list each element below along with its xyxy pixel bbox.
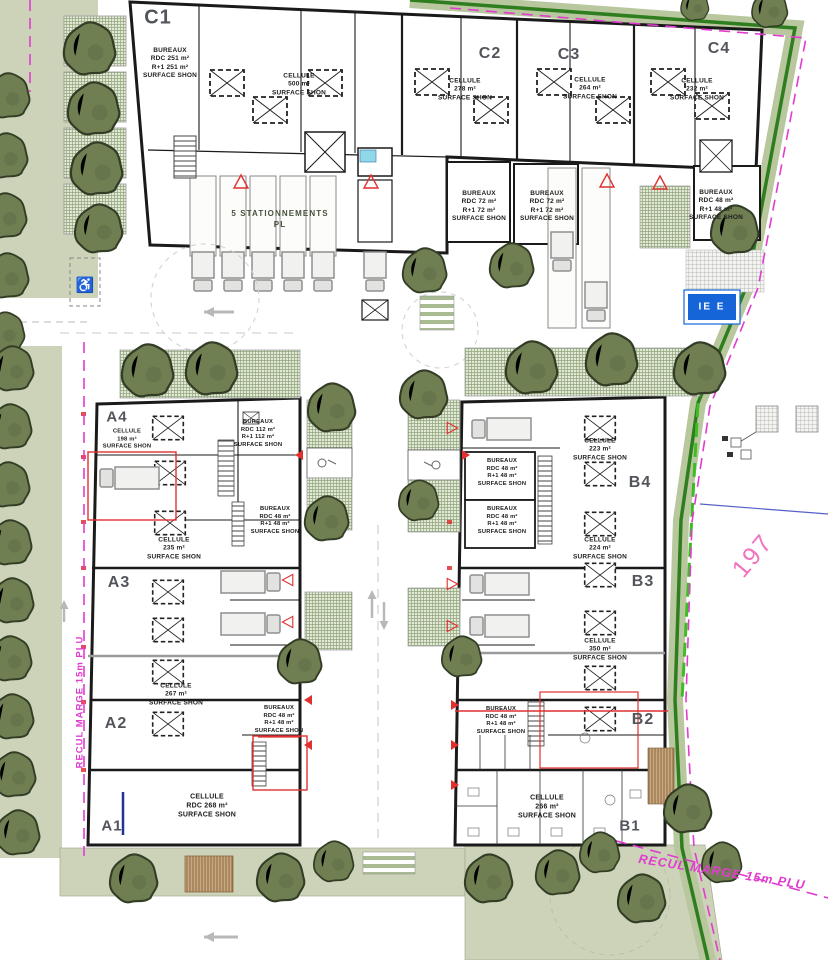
wheelchair-icon: ♿ bbox=[76, 276, 95, 294]
cellule-label-c2: CELLULE278 m²SURFACE SHON bbox=[438, 77, 492, 102]
unit-label-b3: B3 bbox=[632, 573, 654, 591]
roof-hatch-icon bbox=[585, 512, 616, 535]
tree-icon bbox=[0, 810, 40, 854]
bureaux-label-a4: BUREAUXRDC 112 m²R+1 112 m²SURFACE SHON bbox=[234, 419, 282, 449]
tree-icon bbox=[490, 243, 534, 287]
roof-hatch-icon bbox=[585, 416, 616, 439]
truck-icon bbox=[221, 571, 280, 593]
bureaux-label-c3: BUREAUXRDC 72 m²R+1 72 m²SURFACE SHON bbox=[520, 190, 574, 224]
cellule-label-c3: CELLULE264 m²SURFACE SHON bbox=[563, 76, 617, 101]
tree-icon bbox=[681, 0, 709, 20]
bureaux-label-a2: BUREAUXRDC 48 m²R+1 48 m²SURFACE SHON bbox=[255, 705, 303, 735]
bureaux-label-c2: BUREAUXRDC 72 m²R+1 72 m²SURFACE SHON bbox=[452, 190, 506, 224]
tree-icon bbox=[752, 0, 788, 27]
roof-hatch-icon bbox=[253, 97, 287, 123]
truck-icon bbox=[551, 232, 573, 271]
tree-icon bbox=[314, 841, 354, 881]
roof-hatch-icon bbox=[153, 618, 184, 641]
site-plan: ♿ bbox=[0, 0, 828, 960]
unit-label-b2: B2 bbox=[632, 711, 654, 729]
cellule-label-b3: CELLULE224 m²SURFACE SHON bbox=[573, 536, 627, 561]
unit-label-c2: C2 bbox=[479, 45, 501, 63]
detail-callouts bbox=[722, 406, 818, 459]
unit-label-b1: B1 bbox=[619, 818, 640, 835]
site-plan-drawing: ♿ bbox=[0, 0, 828, 960]
tree-icon bbox=[400, 370, 447, 418]
roof-hatch-icon bbox=[153, 660, 184, 683]
tree-icon bbox=[403, 248, 447, 292]
crosswalk bbox=[420, 296, 454, 330]
truck-icon bbox=[364, 252, 386, 291]
roof-hatch-icon bbox=[155, 511, 186, 534]
unit-label-c4: C4 bbox=[708, 40, 730, 58]
truck-icon bbox=[221, 613, 280, 635]
tree-icon bbox=[586, 333, 637, 385]
stair-icon bbox=[218, 440, 234, 496]
unit-label-a2: A2 bbox=[105, 715, 127, 733]
bureaux-bottom-label-b4: BUREAUXRDC 48 m²R+1 48 m²SURFACE SHON bbox=[478, 506, 526, 536]
sign-text: IE E bbox=[699, 302, 726, 313]
roof-hatch-icon bbox=[585, 666, 616, 689]
bureaux-label-c4: BUREAUXRDC 48 m²R+1 48 m²SURFACE SHON bbox=[689, 189, 743, 223]
unit-label-a1: A1 bbox=[101, 818, 122, 835]
roof-hatch-icon bbox=[153, 712, 184, 735]
cellule-label-a3: CELLULE267 m²SURFACE SHON bbox=[149, 682, 203, 707]
bureaux-label-b2: BUREAUXRDC 48 m²R+1 48 m²SURFACE SHON bbox=[477, 706, 525, 736]
crosswalk bbox=[363, 852, 415, 874]
unit-label-c3: C3 bbox=[558, 46, 580, 64]
roof-hatch-icon bbox=[153, 416, 184, 439]
cellule-label-a4: CELLULE198 m²SURFACE SHON bbox=[103, 429, 151, 452]
roof-hatch-icon bbox=[585, 611, 616, 634]
truck-icon bbox=[585, 282, 607, 321]
cellule2-label-a4: CELLULE235 m²SURFACE SHON bbox=[147, 536, 201, 561]
cellule-label-c4: CELLULE232 m²SURFACE SHON bbox=[670, 77, 724, 102]
unit-label-a3: A3 bbox=[108, 574, 130, 592]
bureaux48-label-a4: BUREAUXRDC 48 m²R+1 48 m²SURFACE SHON bbox=[251, 506, 299, 536]
truck-icon bbox=[192, 252, 214, 291]
tree-icon bbox=[399, 480, 439, 520]
cellule-label-b2: CELLULE266 m²SURFACE SHON bbox=[518, 793, 576, 820]
entry-sign bbox=[684, 250, 764, 324]
cellule-label-b4: CELLULE223 m²SURFACE SHON bbox=[573, 437, 627, 462]
cellule2-label-b3: CELLULE350 m²SURFACE SHON bbox=[573, 637, 627, 662]
service-core bbox=[358, 148, 392, 320]
stair-icon bbox=[232, 502, 244, 546]
truck-icon bbox=[100, 467, 159, 489]
stair-icon bbox=[174, 136, 196, 178]
truck-icon bbox=[470, 573, 529, 595]
bureaux-label-c1: BUREAUXRDC 251 m²R+1 251 m²SURFACE SHON bbox=[143, 47, 197, 81]
truck-icon bbox=[312, 252, 334, 291]
roof-hatch-icon bbox=[210, 70, 244, 96]
roof-hatch-icon bbox=[585, 563, 616, 586]
unit-label-c1: C1 bbox=[144, 7, 172, 30]
cellule-label-c1: CELLULE500 m²SURFACE SHON bbox=[272, 72, 326, 97]
stair-icon bbox=[538, 456, 552, 544]
margin-label-left: RECUL MARGE 15m PLU bbox=[75, 636, 86, 769]
parking-label: 5 STATIONNEMENTSPL bbox=[231, 208, 328, 230]
truck-icon bbox=[282, 252, 304, 291]
bureaux-top-label-b4: BUREAUXRDC 48 m²R+1 48 m²SURFACE SHON bbox=[478, 458, 526, 488]
survey-line bbox=[700, 504, 828, 514]
roof-hatch-icon bbox=[153, 580, 184, 603]
truck-icon bbox=[470, 615, 529, 637]
tree-icon bbox=[308, 383, 355, 431]
stair-icon bbox=[252, 742, 266, 786]
unit-label-b4: B4 bbox=[629, 474, 651, 492]
truck-icon bbox=[252, 252, 274, 291]
roof-hatch-icon bbox=[585, 462, 616, 485]
truck-icon bbox=[472, 418, 531, 440]
deck-hatch bbox=[185, 856, 233, 892]
unit-label-a4: A4 bbox=[106, 409, 127, 426]
cellule-label-a2: CELLULERDC 268 m²SURFACE SHON bbox=[178, 792, 236, 819]
